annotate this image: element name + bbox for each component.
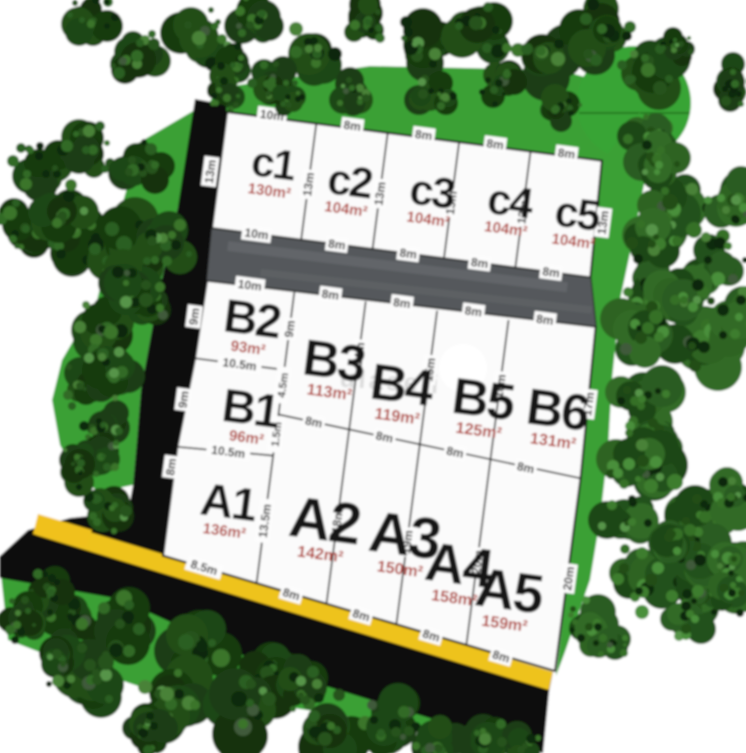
svg-text:9m: 9m xyxy=(175,390,191,409)
svg-text:8m: 8m xyxy=(163,457,179,476)
svg-text:9m: 9m xyxy=(186,307,202,326)
svg-text:8m: 8m xyxy=(535,312,554,328)
svg-text:8m: 8m xyxy=(343,118,362,134)
svg-text:8m: 8m xyxy=(464,303,483,319)
svg-text:8m: 8m xyxy=(414,127,433,143)
svg-text:B1: B1 xyxy=(219,378,282,438)
svg-text:8m: 8m xyxy=(542,264,561,280)
svg-text:8m: 8m xyxy=(486,136,505,152)
svg-text:8m: 8m xyxy=(470,255,489,271)
svg-text:B2: B2 xyxy=(221,288,284,348)
svg-text:8m: 8m xyxy=(321,287,340,303)
svg-text:8m: 8m xyxy=(399,246,418,262)
svg-text:8m: 8m xyxy=(327,236,346,252)
svg-text:8m: 8m xyxy=(392,295,411,311)
svg-text:8m: 8m xyxy=(557,146,576,162)
svg-text:9m: 9m xyxy=(282,319,298,338)
